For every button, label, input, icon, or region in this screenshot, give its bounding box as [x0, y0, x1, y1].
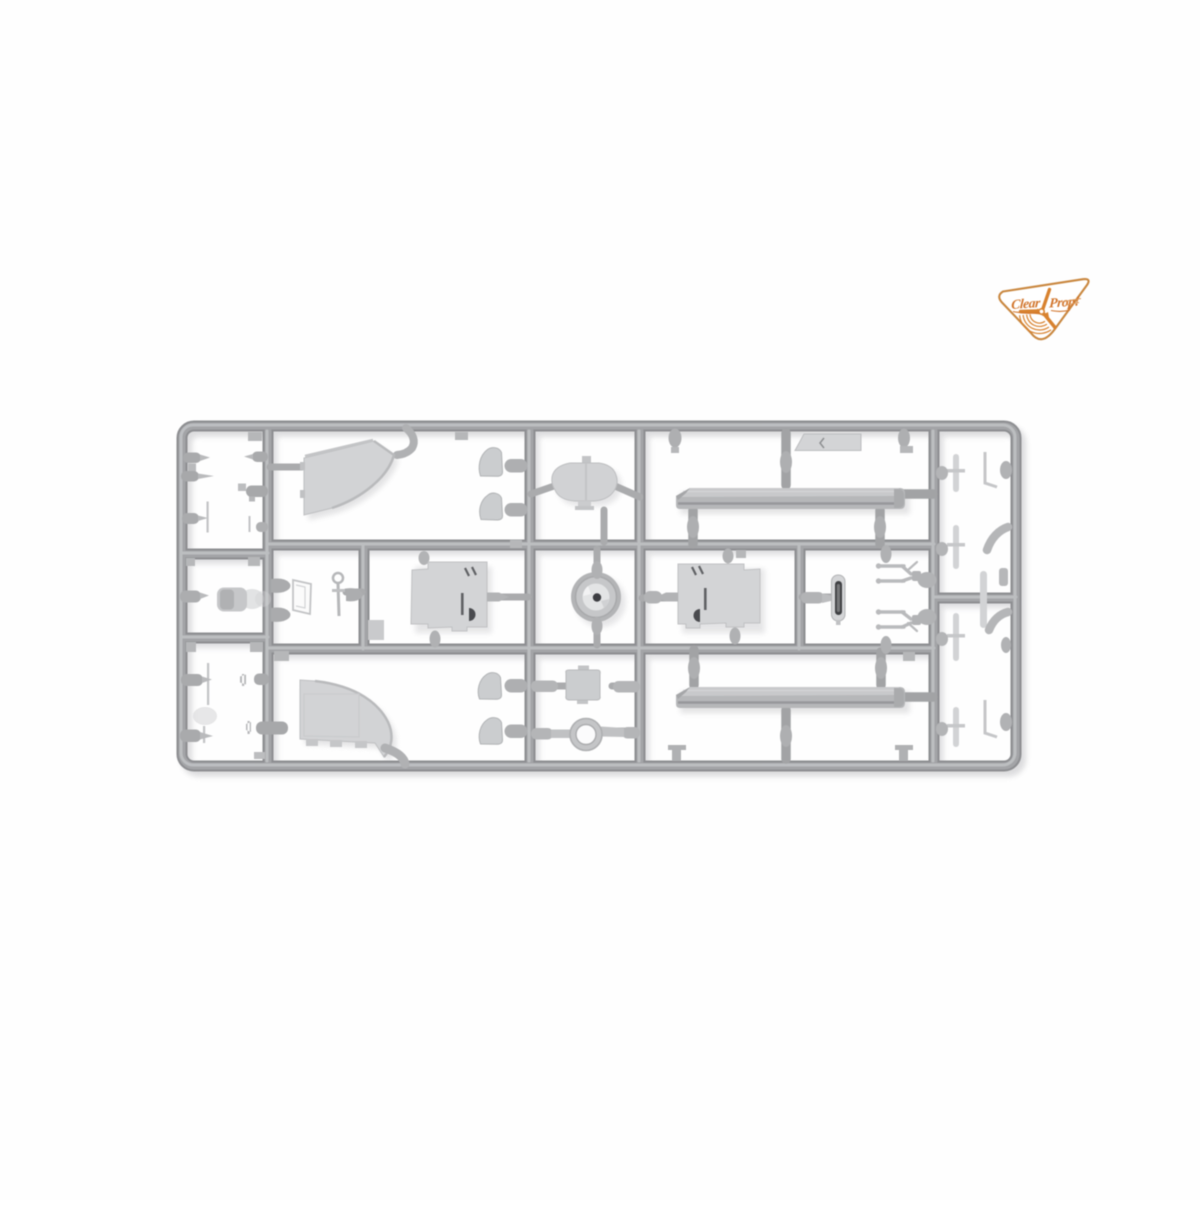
svg-text:Clear: Clear	[1011, 295, 1042, 312]
